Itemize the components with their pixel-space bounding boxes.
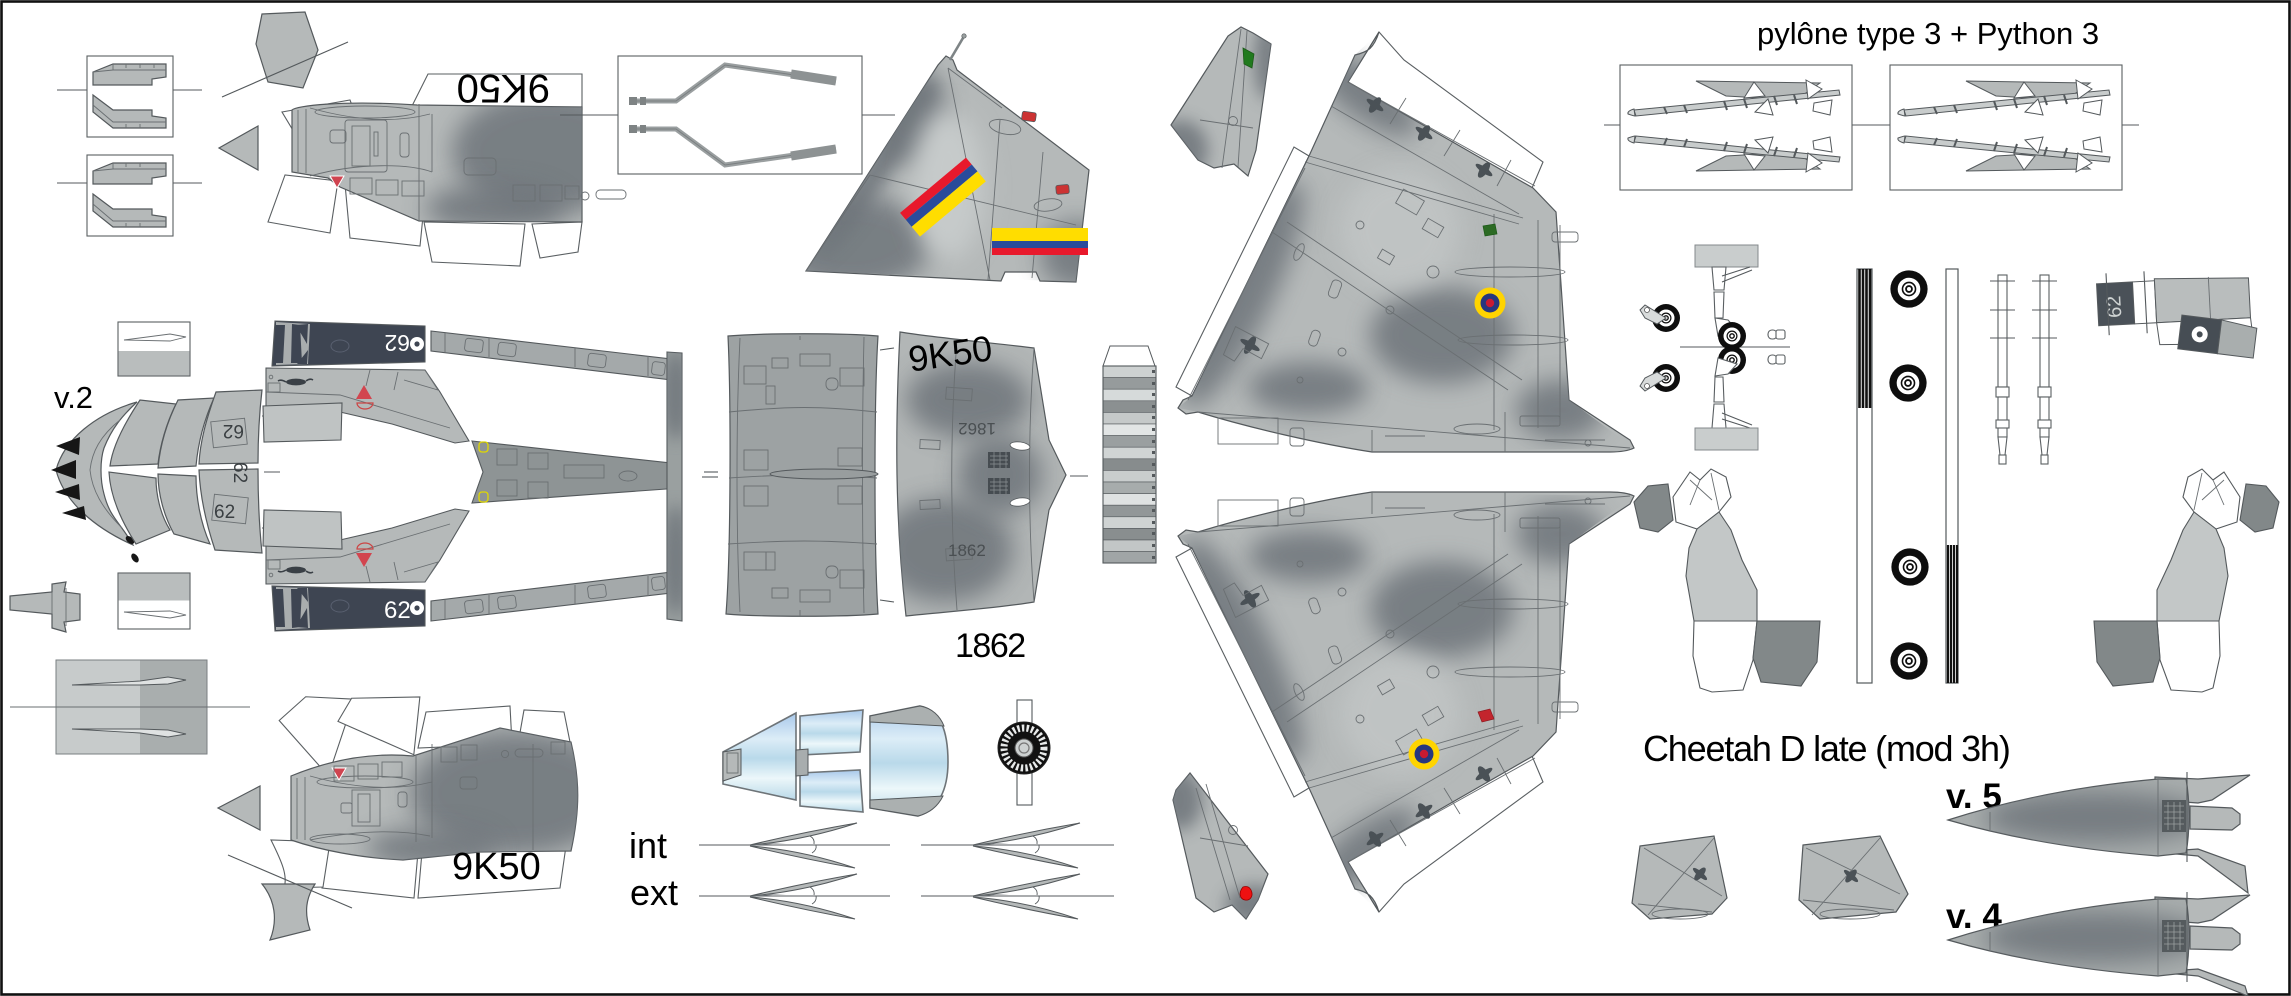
svg-text:ext: ext xyxy=(630,872,678,913)
svg-text:1862: 1862 xyxy=(955,627,1025,665)
svg-text:62: 62 xyxy=(223,420,244,441)
svg-text:9K50: 9K50 xyxy=(452,846,541,888)
svg-text:62: 62 xyxy=(2103,295,2126,318)
svg-text:1862: 1862 xyxy=(948,541,986,560)
svg-text:62: 62 xyxy=(384,597,411,624)
svg-text:1862: 1862 xyxy=(958,419,996,438)
svg-text:pylône type 3 + Python 3: pylône type 3 + Python 3 xyxy=(1757,16,2099,51)
svg-text:int: int xyxy=(629,825,667,866)
svg-text:62: 62 xyxy=(229,462,250,483)
svg-text:v.2: v.2 xyxy=(54,380,93,415)
svg-text:Cheetah D late (mod 3h): Cheetah D late (mod 3h) xyxy=(1643,728,2010,769)
svg-text:62: 62 xyxy=(214,502,235,523)
svg-text:62: 62 xyxy=(384,330,410,356)
svg-text:9K50: 9K50 xyxy=(457,66,550,110)
